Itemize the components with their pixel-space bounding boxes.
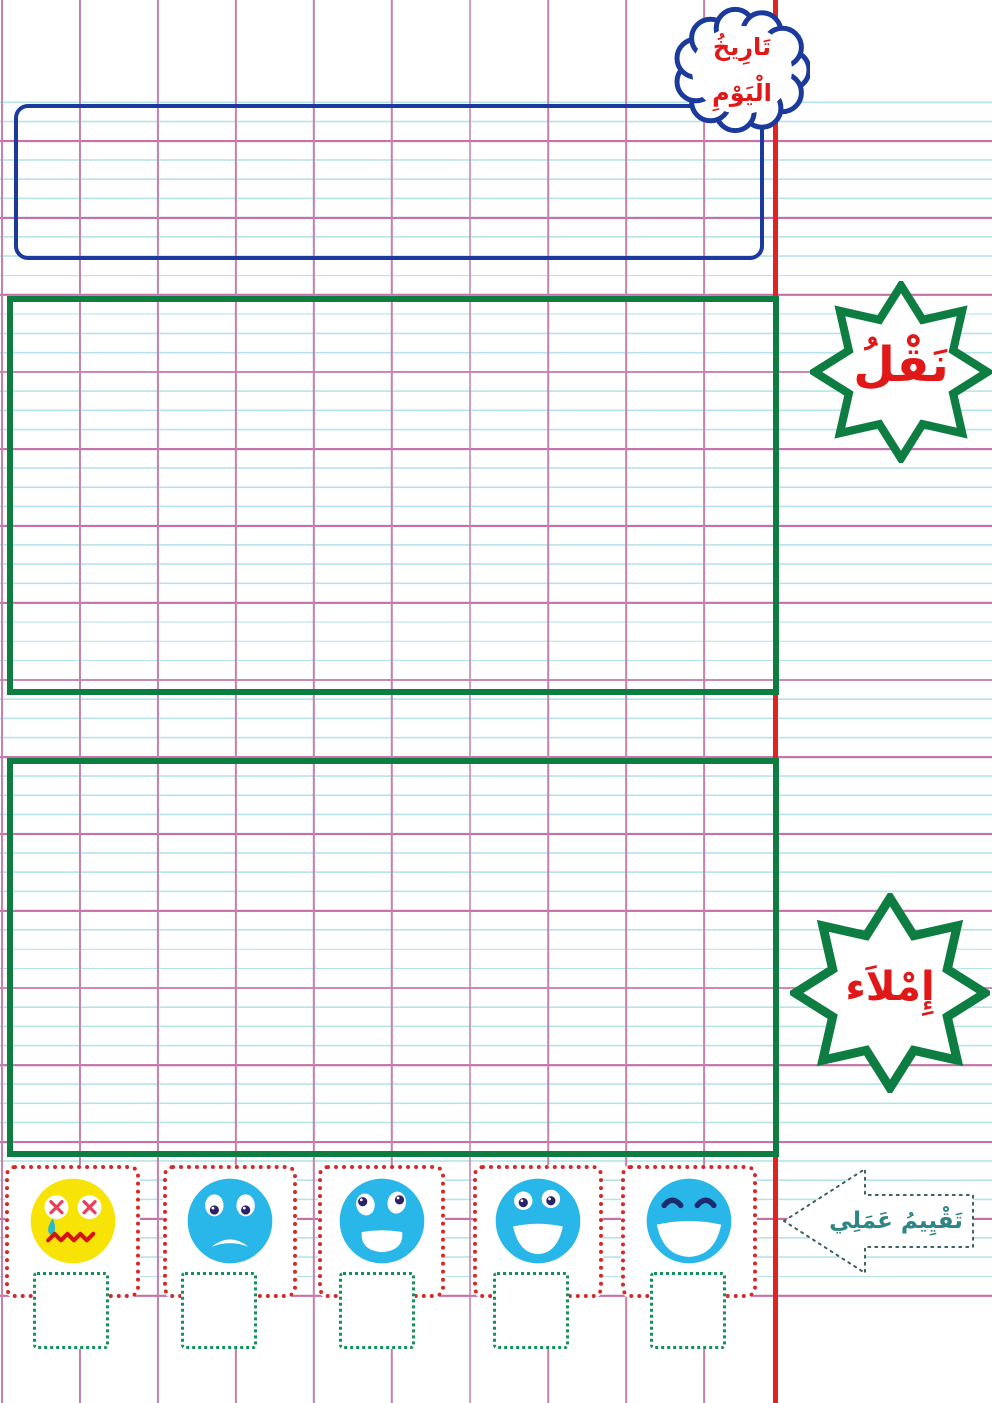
mood-checkbox-5[interactable] [650, 1272, 726, 1349]
imlaa-writing-area[interactable] [7, 758, 779, 1157]
mood-checkbox-1[interactable] [33, 1272, 109, 1349]
worksheet-page: تَارِيخُ الْيَوْمِ نَقْلُ إِمْلاَء [0, 0, 992, 1403]
mood-option-2[interactable] [163, 1165, 297, 1298]
mood-checkbox-3[interactable] [339, 1272, 415, 1349]
imlaa-badge: إِمْلاَء [790, 893, 990, 1091]
mood-option-3[interactable] [318, 1165, 445, 1298]
neutral-face-icon [336, 1175, 428, 1267]
naql-badge-label: نَقْلُ [810, 281, 992, 459]
imlaa-badge-label: إِمْلاَء [790, 893, 990, 1091]
evaluation-arrow: تَقْيِيمُ عَمَلِي [781, 1165, 977, 1277]
mood-option-1[interactable] [5, 1165, 140, 1298]
date-bubble-line1: تَارِيخُ [713, 25, 771, 71]
date-bubble-line2: الْيَوْمِ [712, 71, 772, 117]
mood-checkbox-4[interactable] [493, 1272, 569, 1349]
crying-face-icon [27, 1175, 119, 1267]
naql-badge: نَقْلُ [810, 281, 992, 459]
date-entry-box[interactable] [14, 104, 764, 260]
mood-option-4[interactable] [473, 1165, 603, 1298]
sad-face-icon [184, 1175, 276, 1267]
mood-option-5[interactable] [621, 1165, 757, 1298]
margin-line [773, 0, 778, 1403]
date-bubble: تَارِيخُ الْيَوْمِ [674, 6, 810, 136]
mood-checkbox-2[interactable] [181, 1272, 257, 1349]
naql-writing-area[interactable] [7, 296, 779, 695]
evaluation-arrow-label: تَقْيِيمُ عَمَلِي [821, 1193, 971, 1249]
happy-face-icon [492, 1175, 584, 1267]
laughing-face-icon [643, 1175, 735, 1267]
